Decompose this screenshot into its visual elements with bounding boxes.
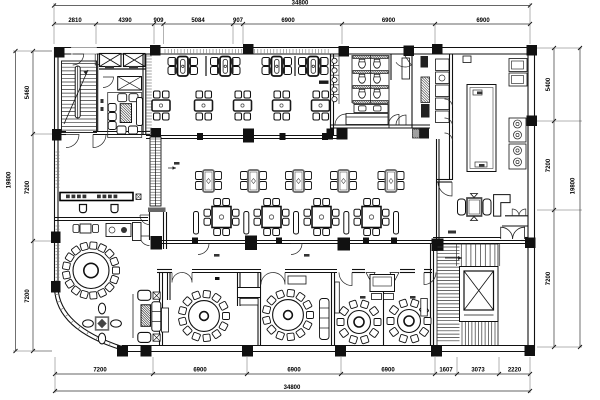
svg-text:7200: 7200	[93, 368, 107, 374]
svg-text:2220: 2220	[508, 368, 522, 374]
svg-text:5460: 5460	[25, 85, 31, 99]
svg-text:7200: 7200	[25, 289, 31, 303]
svg-text:19800: 19800	[571, 177, 577, 194]
svg-text:2810: 2810	[68, 18, 82, 24]
svg-text:34800: 34800	[284, 385, 301, 391]
svg-text:6900: 6900	[281, 18, 295, 24]
svg-text:6900: 6900	[287, 368, 301, 374]
svg-text:7200: 7200	[546, 158, 552, 172]
svg-text:7200: 7200	[25, 180, 31, 194]
svg-text:5084: 5084	[191, 18, 205, 24]
svg-text:6900: 6900	[476, 18, 490, 24]
svg-text:1607: 1607	[439, 368, 453, 374]
svg-text:909: 909	[153, 18, 164, 24]
svg-text:6900: 6900	[382, 18, 396, 24]
svg-text:6900: 6900	[193, 368, 207, 374]
svg-text:5400: 5400	[546, 77, 552, 91]
svg-text:4390: 4390	[118, 18, 132, 24]
svg-text:907: 907	[233, 18, 244, 24]
svg-text:7200: 7200	[546, 271, 552, 285]
svg-text:3073: 3073	[471, 368, 485, 374]
svg-text:6900: 6900	[381, 368, 395, 374]
svg-text:19800: 19800	[7, 171, 13, 188]
svg-text:34800: 34800	[292, 1, 309, 7]
